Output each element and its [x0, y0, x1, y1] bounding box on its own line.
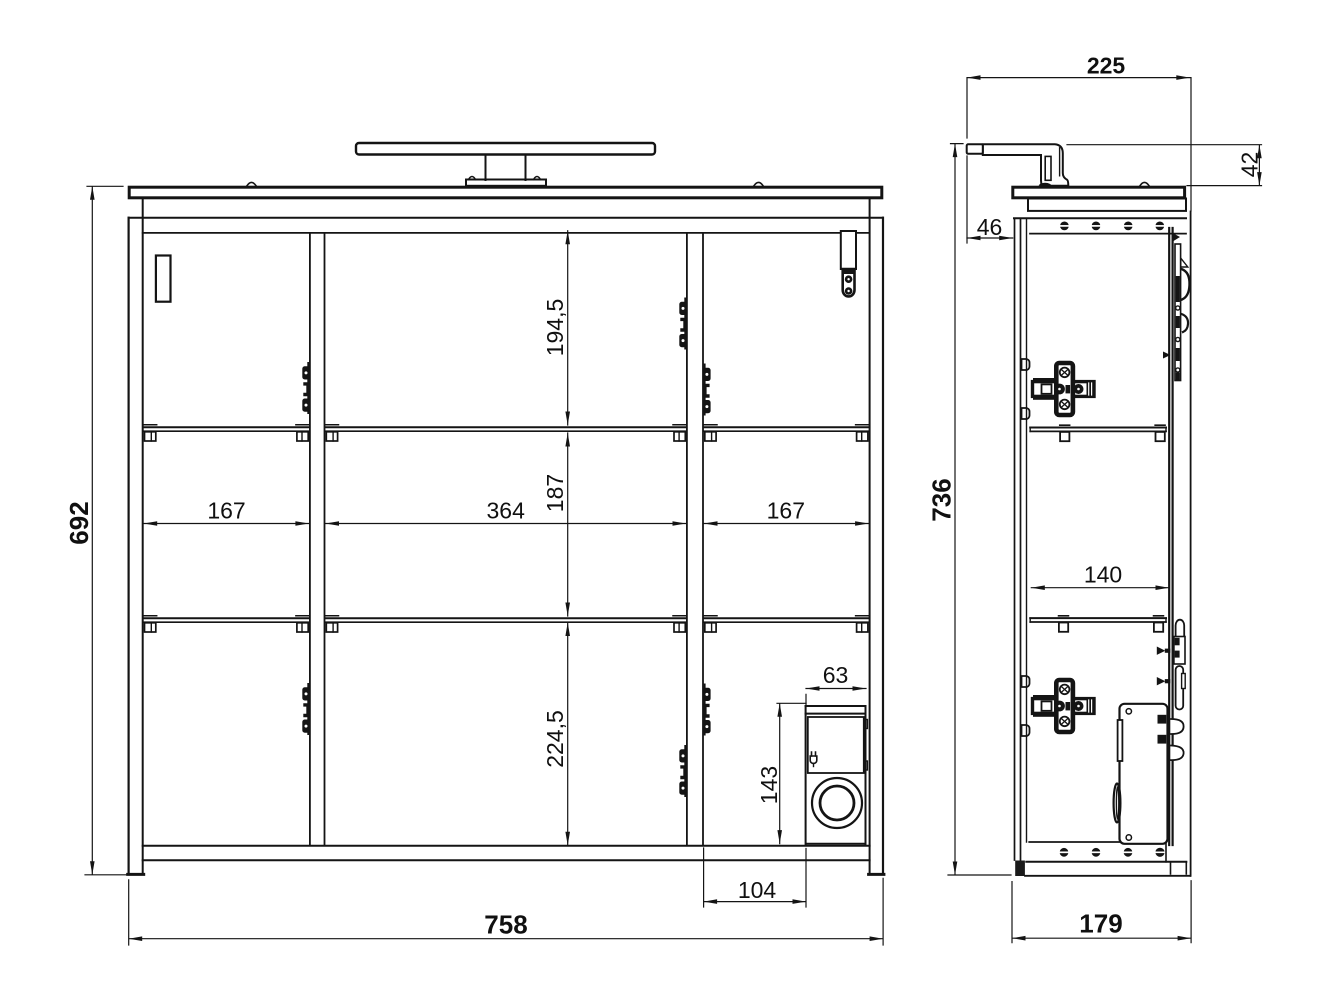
svg-text:758: 758	[484, 910, 527, 940]
svg-text:187: 187	[542, 474, 568, 512]
svg-text:364: 364	[487, 498, 526, 524]
svg-text:692: 692	[64, 501, 94, 544]
svg-text:140: 140	[1084, 562, 1122, 588]
svg-text:63: 63	[823, 662, 849, 688]
svg-text:104: 104	[738, 877, 777, 903]
svg-text:194,5: 194,5	[542, 299, 568, 357]
svg-text:42: 42	[1237, 152, 1263, 178]
svg-text:225: 225	[1087, 53, 1126, 79]
svg-text:143: 143	[756, 766, 782, 804]
svg-text:179: 179	[1079, 909, 1122, 939]
svg-text:224,5: 224,5	[542, 710, 568, 768]
svg-text:736: 736	[926, 478, 956, 521]
svg-text:167: 167	[207, 498, 245, 524]
svg-text:46: 46	[977, 214, 1003, 240]
svg-text:167: 167	[767, 498, 805, 524]
